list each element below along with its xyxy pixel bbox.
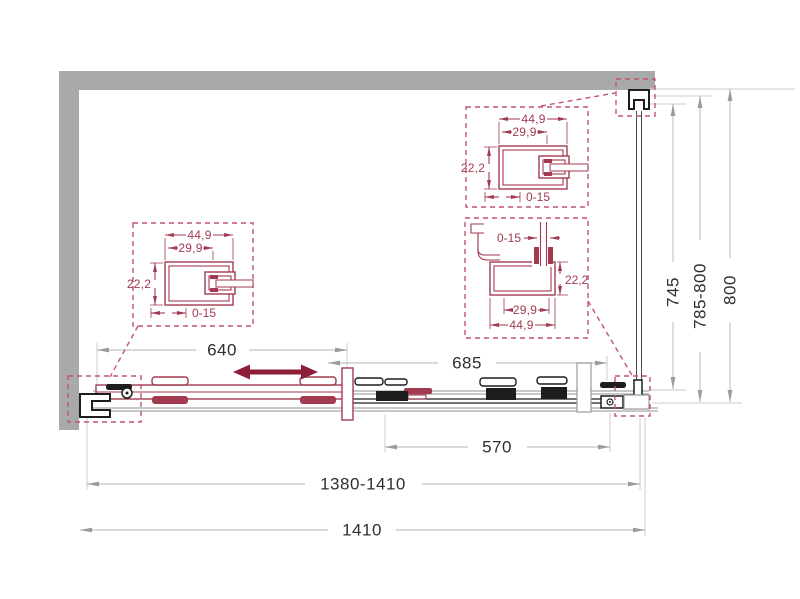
panel-clip [404, 388, 432, 394]
dim-745: 745 [664, 104, 683, 389]
detail-top-outer-label: 44,9 [521, 112, 545, 126]
detail-top-inner-label: 29,9 [512, 125, 536, 139]
wall-profile-top [629, 90, 649, 109]
dim-685-label: 685 [452, 354, 482, 373]
profile-detail-top: 44,9 29,9 22,2 0-15 [461, 112, 588, 204]
detail-left-depth-label: 22,2 [127, 277, 151, 291]
profile-detail-left: 44,9 29,9 22,2 0-15 [127, 228, 253, 320]
door-handle-profile [342, 368, 353, 420]
dim-1410: 1410 [80, 521, 645, 540]
detail-bottom-outer-label: 44,9 [509, 318, 533, 332]
glass-holder-post [577, 363, 591, 412]
door-track [78, 363, 658, 420]
fixed-glass-panel [637, 111, 642, 384]
detail-bottom-inner-label: 29,9 [513, 303, 537, 317]
detail-bottom-depth-label: 22,2 [565, 273, 589, 287]
dim-640: 640 [97, 341, 347, 360]
dim-800-label: 800 [721, 275, 740, 305]
technical-drawing-page: 640 685 570 1380-1410 1410 745 785-800 8… [0, 0, 800, 599]
dim-800: 800 [721, 89, 740, 402]
detail-top-adjust-label: 0-15 [526, 190, 550, 204]
profile-detail-bottom: 0-15 22,2 29,9 44,9 [471, 222, 589, 332]
dim-785-800-label: 785-800 [691, 263, 710, 329]
wall [59, 71, 655, 430]
dim-570: 570 [385, 438, 610, 457]
leader-bottom [588, 301, 633, 377]
shower-door-dimension-drawing: 640 685 570 1380-1410 1410 745 785-800 8… [0, 0, 800, 599]
leader-left [110, 326, 138, 377]
dim-1380-1410-label: 1380-1410 [320, 475, 406, 494]
dim-785-800: 785-800 [691, 96, 710, 402]
roller-right-top [300, 377, 336, 385]
detail-left-outer-label: 44,9 [187, 228, 211, 242]
slide-direction-arrow [233, 365, 318, 380]
dim-685: 685 [328, 354, 607, 373]
dim-1380-1410: 1380-1410 [87, 475, 640, 494]
dim-570-label: 570 [482, 438, 512, 457]
roller-left-bottom [152, 396, 188, 404]
roller-left-top [152, 377, 188, 385]
detail-left-adjust-label: 0-15 [192, 306, 216, 320]
dim-1410-label: 1410 [342, 521, 382, 540]
dim-640-label: 640 [207, 341, 237, 360]
leader-top [541, 93, 615, 106]
roller-right-bottom [300, 396, 336, 404]
detail-bottom-adjust-label: 0-15 [497, 231, 521, 245]
detail-left-inner-label: 29,9 [178, 241, 202, 255]
detail-top-depth-label: 22,2 [461, 161, 485, 175]
dim-745-label: 745 [664, 277, 683, 307]
